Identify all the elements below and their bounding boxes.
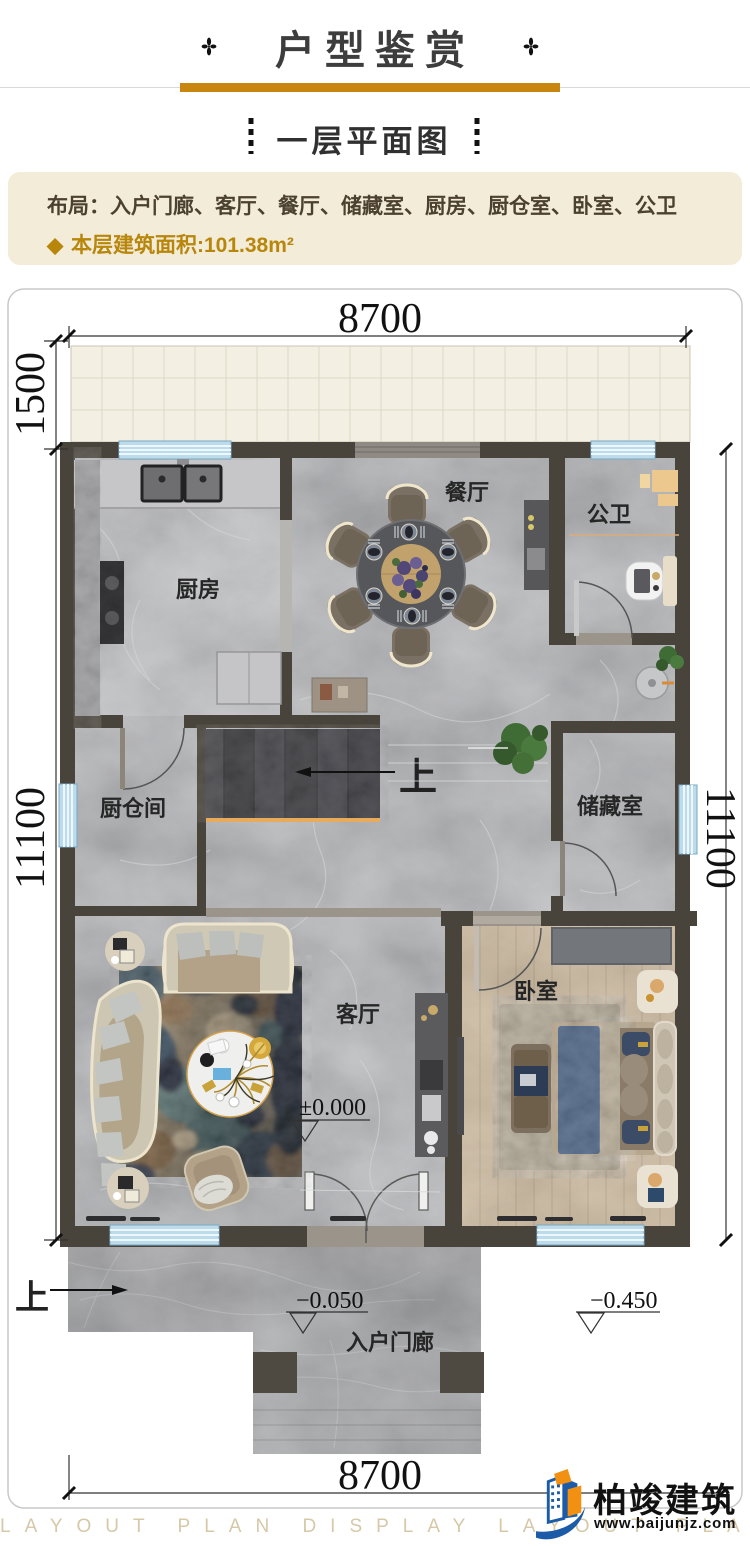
svg-text:8700: 8700	[338, 1453, 422, 1499]
svg-text:−0.050: −0.050	[296, 1288, 364, 1314]
svg-text:卧室: 卧室	[514, 979, 558, 1004]
svg-text:1500: 1500	[8, 352, 54, 436]
svg-text:11100: 11100	[8, 787, 54, 889]
svg-text:11100: 11100	[697, 787, 743, 889]
svg-text:公卫: 公卫	[587, 502, 631, 527]
svg-text:8700: 8700	[338, 296, 422, 342]
svg-text:储藏室: 储藏室	[577, 794, 643, 819]
svg-text:厨仓间: 厨仓间	[100, 796, 166, 821]
svg-text:www.baijunjz.com: www.baijunjz.com	[593, 1515, 736, 1532]
svg-text:厨房: 厨房	[176, 577, 220, 602]
svg-text:客厅: 客厅	[336, 1002, 380, 1027]
svg-text:±0.000: ±0.000	[299, 1095, 366, 1121]
svg-text:上: 上	[15, 1279, 49, 1317]
svg-text:−0.450: −0.450	[590, 1288, 658, 1314]
svg-text:餐厅: 餐厅	[445, 480, 489, 505]
svg-text:入户门廊: 入户门廊	[346, 1330, 434, 1355]
